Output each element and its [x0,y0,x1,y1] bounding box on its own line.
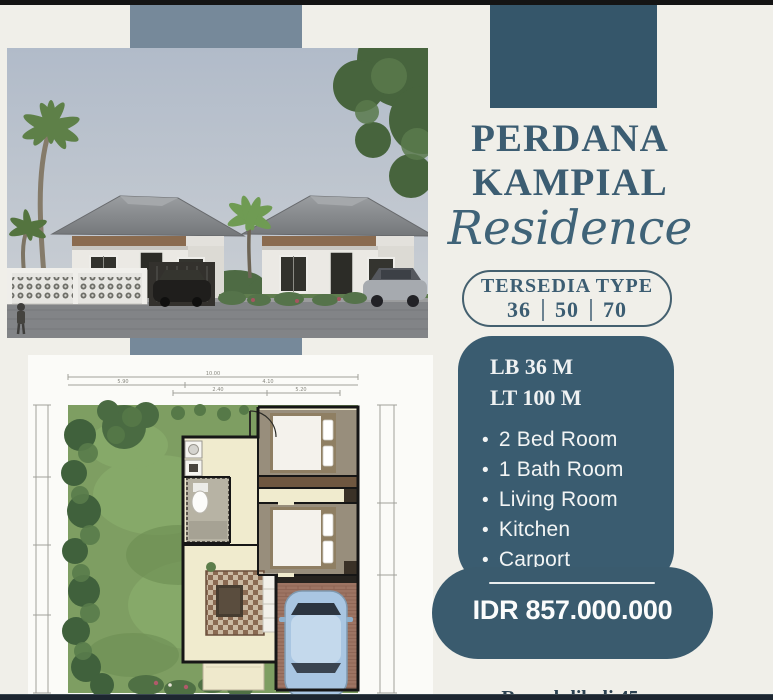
available-types-box: TERSEDIA TYPE 365070 [462,270,672,327]
kitchen [185,441,202,476]
gate [149,262,215,307]
wardrobe [258,476,358,488]
title-script: Residence [430,203,710,255]
right-header-tab [490,5,657,108]
street [7,302,428,338]
price-text: IDR 857.000.000 [432,595,713,626]
flyer-root: 10.00 5.90 4.10 2.40 5.20 [0,0,773,700]
price-pill: IDR 857.000.000 [432,567,713,659]
type-value: 36 [496,299,542,321]
porch [203,662,264,690]
title-line2: KAMPIAL [430,163,710,202]
top-border-bar [0,0,773,5]
breeze-block-fence [7,268,147,304]
dim-label: 2.40 [212,387,223,393]
feature-item: Living Room [482,485,674,515]
specs-panel: LB 36 M LT 100 M 2 Bed Room 1 Bath Room … [458,336,674,584]
available-types-values: 365070 [496,299,638,321]
dim-label: 4.10 [262,379,273,385]
dim-label: 5.20 [295,387,306,393]
feature-item: Kitchen [482,515,674,545]
dim-label: 10.00 [206,371,220,377]
car-top-view [279,591,353,697]
type-value: 50 [542,299,590,321]
feature-item: 1 Bath Room [482,455,674,485]
building-area-label: LB 36 M [490,356,674,378]
dim-label: 5.90 [117,379,128,385]
floor-plan-image: 10.00 5.90 4.10 2.40 5.20 [28,355,433,700]
feature-item: 2 Bed Room [482,425,674,455]
land-area-label: LT 100 M [490,387,674,409]
feature-list: 2 Bed Room 1 Bath Room Living Room Kitch… [458,425,674,575]
price-divider [489,582,655,584]
bottom-border-bar [0,695,773,700]
type-value: 70 [590,299,638,321]
title-line1: PERDANA [430,119,710,158]
house-render-image [7,48,428,338]
available-types-label: TERSEDIA TYPE [481,276,653,297]
